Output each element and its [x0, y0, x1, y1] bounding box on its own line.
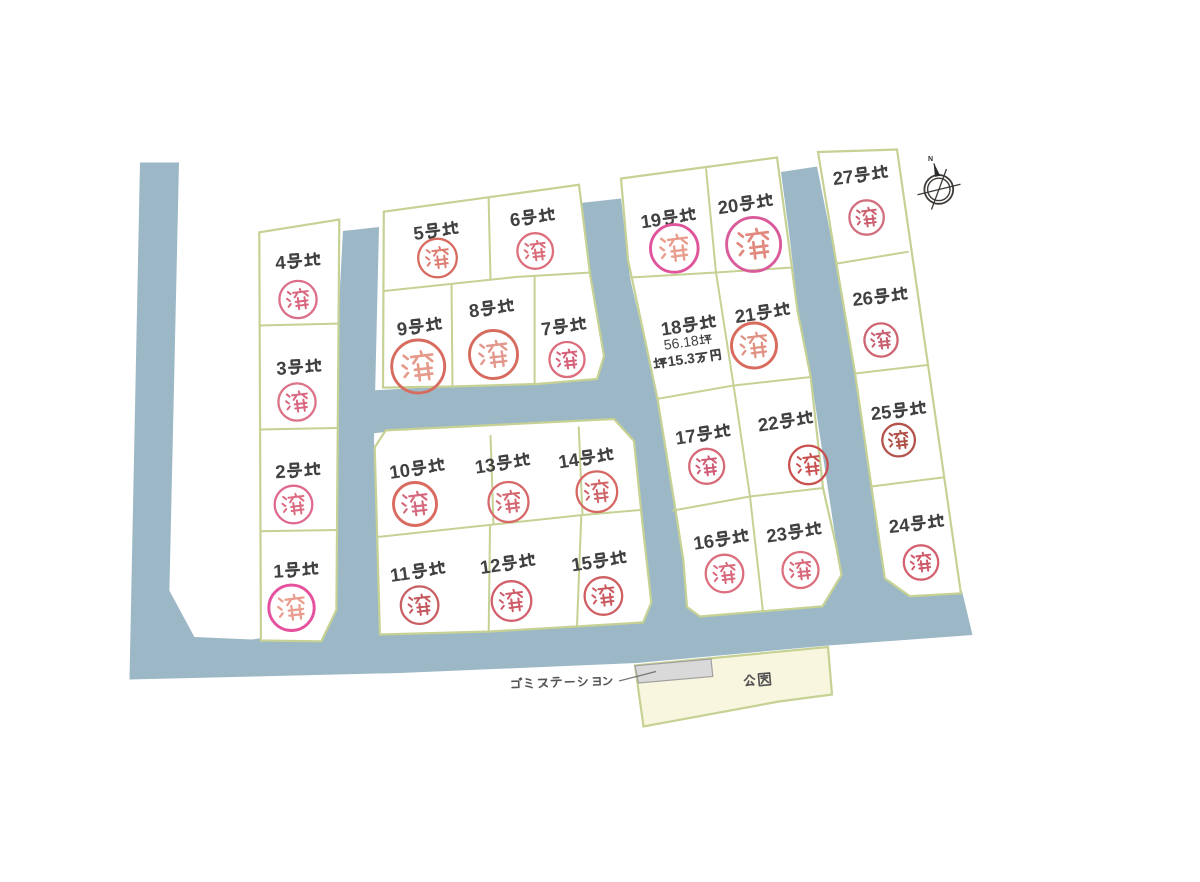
- svg-text:12: 12: [479, 554, 502, 578]
- svg-text:10: 10: [388, 459, 411, 483]
- svg-text:25: 25: [870, 401, 893, 424]
- svg-text:16: 16: [692, 530, 715, 554]
- svg-text:20: 20: [716, 194, 739, 218]
- svg-text:11: 11: [389, 562, 411, 586]
- svg-text:N: N: [928, 156, 933, 163]
- svg-text:15: 15: [570, 552, 593, 576]
- svg-text:2: 2: [275, 461, 286, 483]
- svg-text:26: 26: [851, 287, 874, 310]
- svg-text:14: 14: [557, 449, 581, 473]
- svg-text:3: 3: [276, 357, 287, 379]
- svg-text:22: 22: [756, 412, 779, 436]
- svg-text:27: 27: [832, 166, 855, 189]
- svg-text:23: 23: [765, 523, 788, 547]
- svg-text:13: 13: [473, 454, 496, 478]
- svg-text:17: 17: [674, 425, 697, 449]
- svg-text:24: 24: [888, 514, 911, 537]
- svg-text:1: 1: [273, 560, 284, 582]
